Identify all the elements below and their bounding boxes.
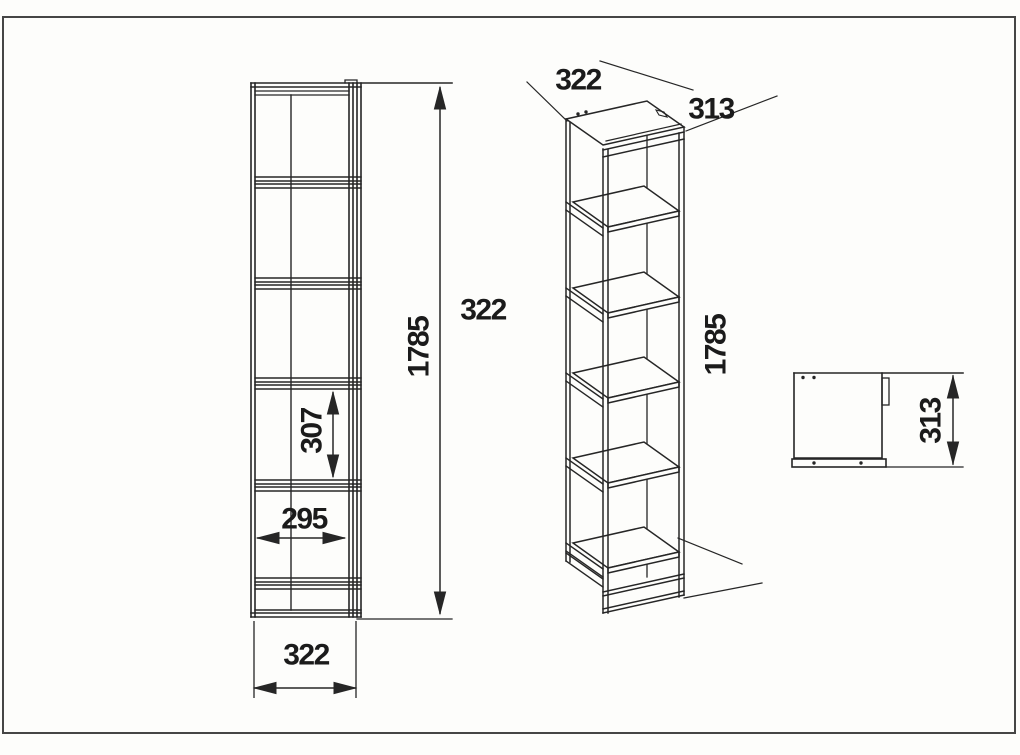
side-screw-hole	[801, 376, 804, 379]
dim-label-iso-height: 1785	[700, 314, 733, 376]
iso-screw-hole	[584, 110, 587, 113]
dim-label-shelf-opening: 307	[296, 407, 329, 453]
dim-label-side-depth: 313	[915, 397, 948, 443]
shelf-technical-drawing: 1785 322 307 295 322 322 313 1785 313	[0, 0, 1020, 755]
canvas-background	[0, 0, 1020, 755]
dim-label-inner-width: 295	[281, 503, 327, 536]
side-screw-hole	[812, 376, 815, 379]
side-screw-hole	[812, 461, 815, 464]
iso-screw-hole	[576, 112, 579, 115]
dim-label-front-height: 1785	[403, 316, 436, 378]
technical-drawing-page: 1785 322 307 295 322 322 313 1785 313	[0, 0, 1020, 755]
side-screw-hole	[859, 461, 862, 464]
dim-label-iso-width: 322	[555, 64, 601, 97]
dim-label-front-width-floating: 322	[460, 294, 506, 327]
dim-label-iso-depth: 313	[688, 93, 734, 126]
dim-label-bottom-width: 322	[283, 639, 329, 672]
